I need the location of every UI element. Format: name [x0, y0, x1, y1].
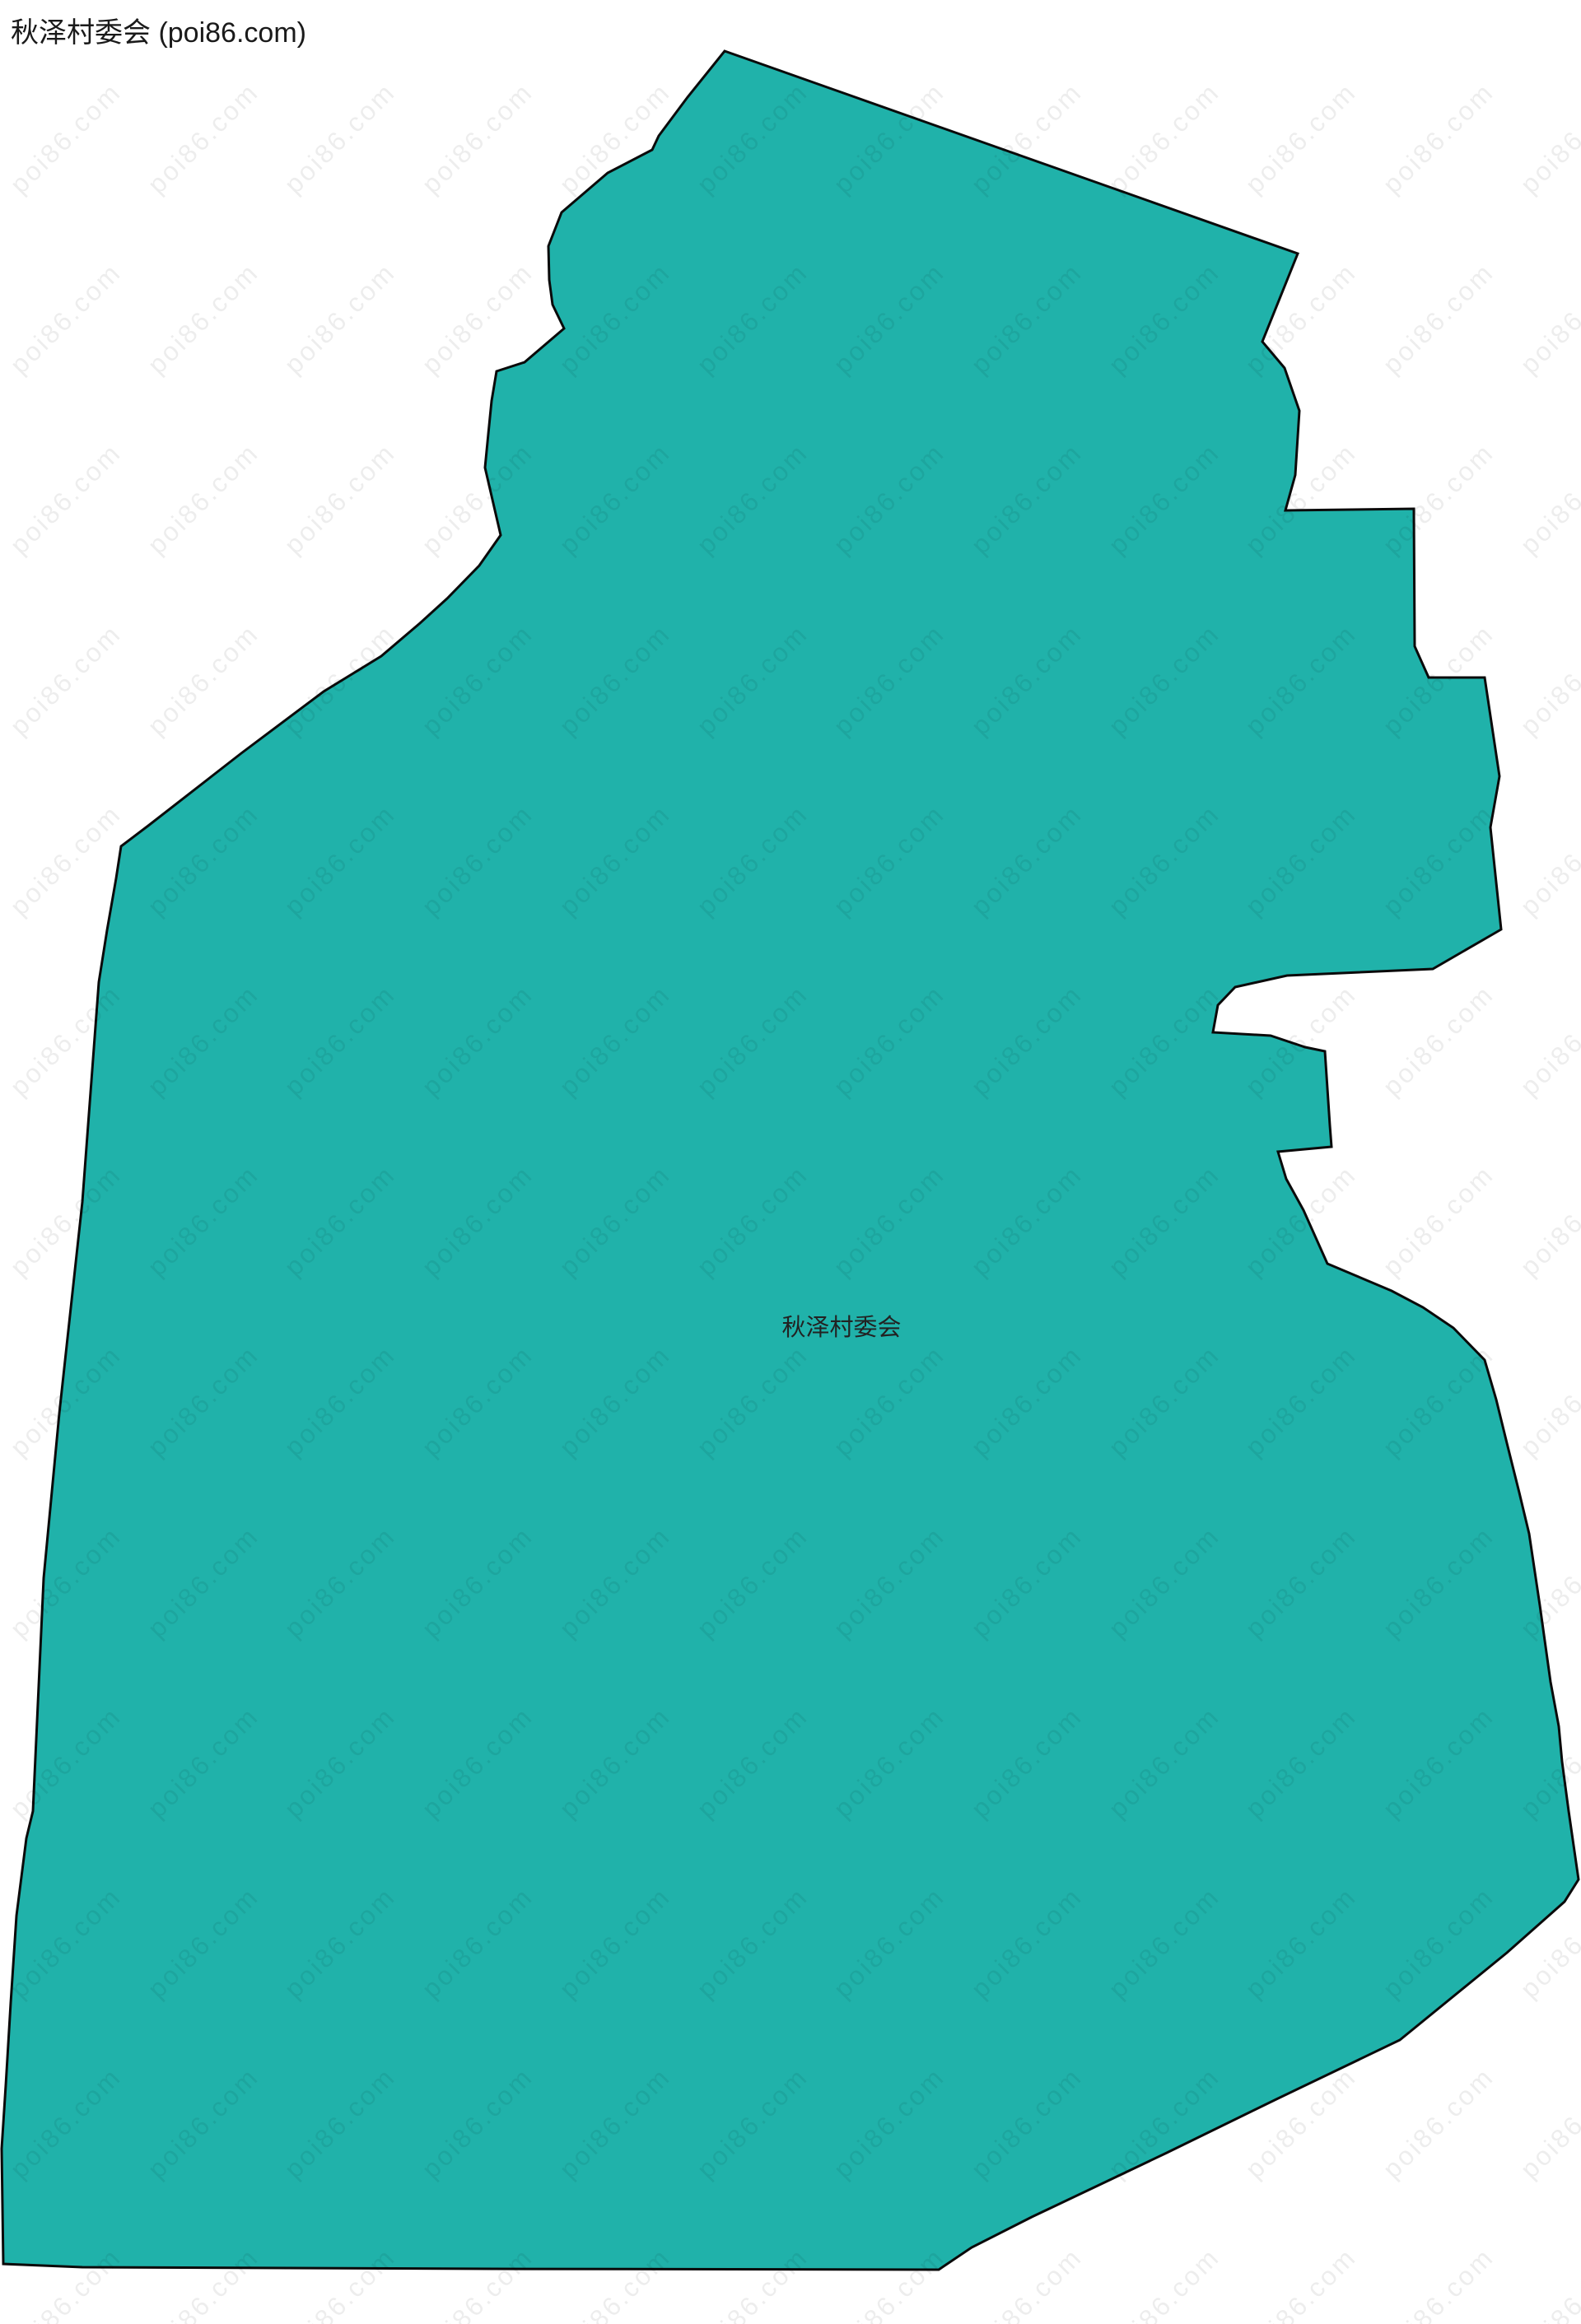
region-label: 秋泽村委会 [781, 1308, 901, 1343]
map-canvas [0, 0, 1581, 2324]
region-boundary-polygon [2, 51, 1579, 2270]
page-title: 秋泽村委会 (poi86.com) [11, 10, 306, 50]
map-page: poi86.compoi86.compoi86.compoi86.compoi8… [0, 0, 1581, 2324]
